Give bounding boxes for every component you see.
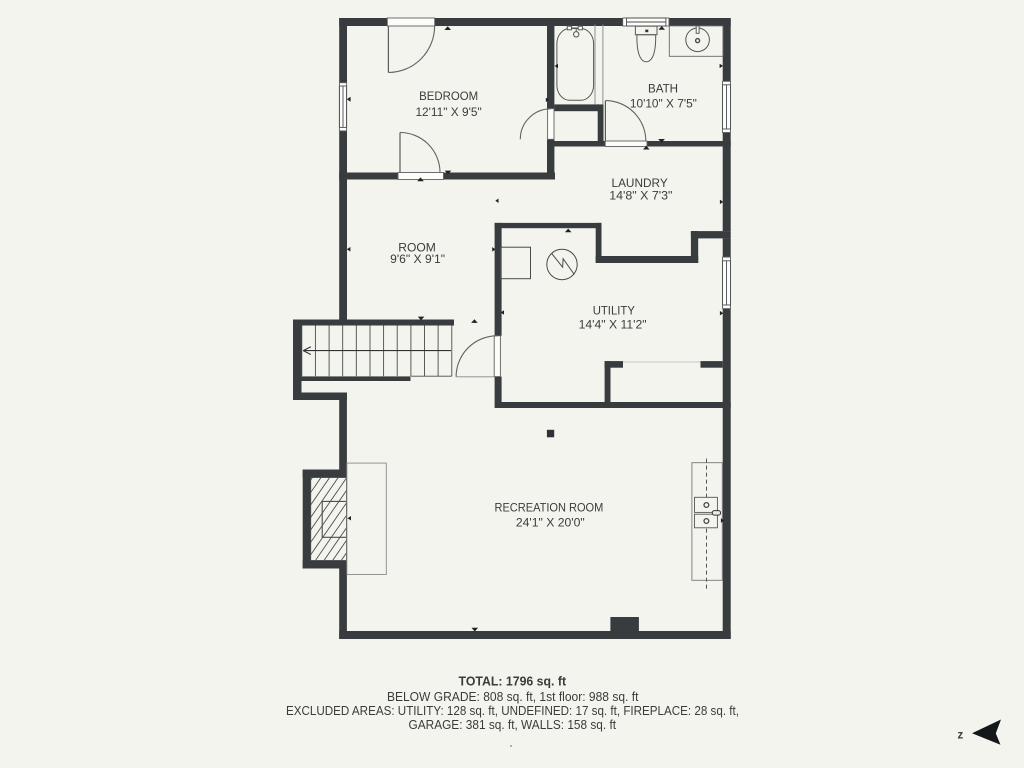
svg-text:24'1" X 20'0": 24'1" X 20'0" bbox=[516, 516, 585, 530]
svg-text:BELOW GRADE: 808 sq. ft, 1st f: BELOW GRADE: 808 sq. ft, 1st floor: 988 … bbox=[387, 690, 639, 704]
svg-text:10'10" X 7'5": 10'10" X 7'5" bbox=[630, 97, 697, 111]
svg-text:14'8" X 7'3": 14'8" X 7'3" bbox=[609, 189, 672, 203]
svg-text:RECREATION ROOM: RECREATION ROOM bbox=[495, 500, 604, 514]
svg-text:12'11" X 9'5": 12'11" X 9'5" bbox=[415, 105, 481, 119]
svg-text:BEDROOM: BEDROOM bbox=[419, 89, 478, 103]
svg-text:14'4" X 11'2": 14'4" X 11'2" bbox=[579, 318, 647, 332]
svg-text:TOTAL: 1796 sq. ft: TOTAL: 1796 sq. ft bbox=[459, 674, 567, 688]
svg-text:9'6" X 9'1": 9'6" X 9'1" bbox=[390, 252, 445, 266]
svg-text:BATH: BATH bbox=[648, 82, 678, 96]
svg-text:LAUNDRY: LAUNDRY bbox=[612, 176, 668, 190]
svg-text:EXCLUDED AREAS: UTILITY: 128 s: EXCLUDED AREAS: UTILITY: 128 sq. ft, UND… bbox=[286, 704, 739, 718]
svg-text:GARAGE: 381 sq. ft, WALLS: 158: GARAGE: 381 sq. ft, WALLS: 158 sq. ft bbox=[409, 718, 617, 732]
svg-text:z: z bbox=[958, 730, 964, 742]
svg-text:UTILITY: UTILITY bbox=[593, 304, 635, 318]
